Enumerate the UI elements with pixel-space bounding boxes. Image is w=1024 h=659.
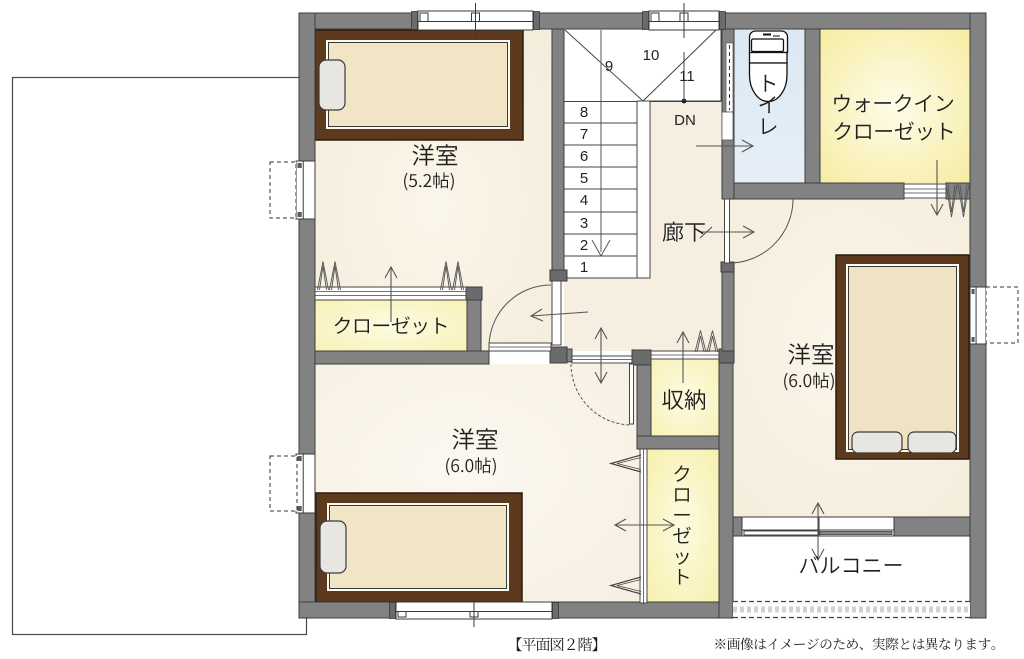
svg-text:11: 11	[679, 68, 695, 85]
svg-text:6: 6	[580, 148, 588, 165]
svg-text:DN: DN	[674, 112, 696, 129]
svg-text:10: 10	[643, 47, 660, 64]
svg-text:7: 7	[580, 126, 588, 143]
svg-text:1: 1	[580, 259, 588, 276]
svg-text:4: 4	[580, 192, 588, 209]
svg-text:8: 8	[580, 104, 588, 121]
svg-text:9: 9	[605, 58, 613, 75]
svg-text:3: 3	[580, 215, 588, 232]
svg-text:5: 5	[580, 170, 588, 187]
svg-text:2: 2	[580, 237, 588, 254]
